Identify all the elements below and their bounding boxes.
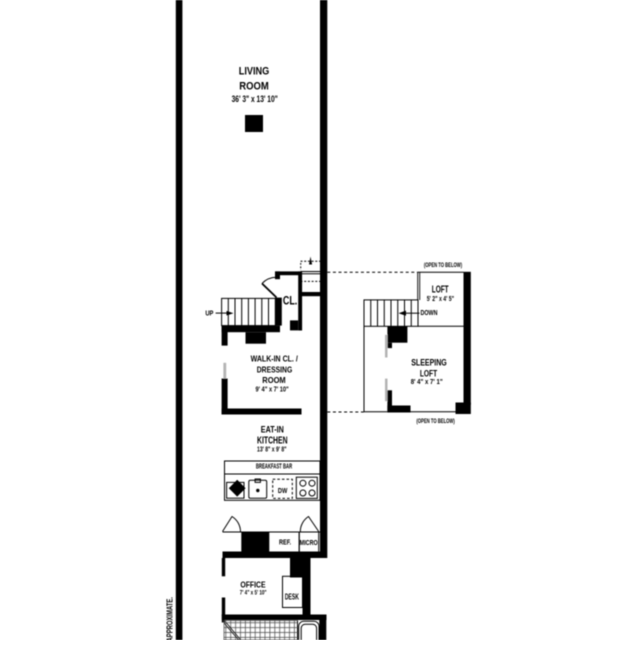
svg-text:ROOM: ROOM — [239, 80, 269, 92]
svg-text:DW: DW — [278, 488, 288, 495]
svg-text:WALK-IN CL. /: WALK-IN CL. / — [251, 354, 299, 364]
svg-text:(OPEN TO BELOW): (OPEN TO BELOW) — [416, 418, 454, 425]
svg-text:LOFT: LOFT — [432, 285, 449, 296]
svg-text:APPROXIMATE.: APPROXIMATE. — [164, 597, 174, 640]
svg-text:REF.: REF. — [279, 538, 291, 547]
svg-text:9' 4" x 7' 10": 9' 4" x 7' 10" — [256, 386, 289, 393]
svg-text:36' 3" x 13' 10": 36' 3" x 13' 10" — [232, 94, 278, 104]
svg-text:7' 4" x 5' 10": 7' 4" x 5' 10" — [240, 589, 267, 596]
svg-text:13' 8" x 9' 8": 13' 8" x 9' 8" — [257, 446, 287, 453]
svg-text:KITCHEN: KITCHEN — [257, 436, 288, 447]
svg-text:DRESSING: DRESSING — [257, 364, 293, 374]
svg-text:LIVING: LIVING — [239, 66, 270, 78]
svg-text:UP: UP — [205, 308, 213, 317]
svg-text:BREAKFAST BAR: BREAKFAST BAR — [256, 461, 293, 470]
svg-text:DESK: DESK — [285, 592, 299, 601]
svg-text:EAT-IN: EAT-IN — [261, 424, 284, 435]
svg-text:LOFT: LOFT — [420, 369, 438, 379]
svg-text:MICRO: MICRO — [300, 538, 318, 547]
svg-text:8' 4" x 7' 1": 8' 4" x 7' 1" — [411, 379, 443, 386]
svg-text:SLEEPING: SLEEPING — [411, 358, 447, 368]
svg-text:CL.: CL. — [283, 295, 297, 307]
svg-text:ROOM: ROOM — [262, 375, 285, 385]
svg-text:(OPEN TO BELOW): (OPEN TO BELOW) — [424, 262, 462, 269]
svg-text:5' 2" x 4' 5": 5' 2" x 4' 5" — [427, 296, 454, 303]
svg-text:OFFICE: OFFICE — [240, 579, 266, 589]
svg-text:DOWN: DOWN — [421, 308, 438, 317]
